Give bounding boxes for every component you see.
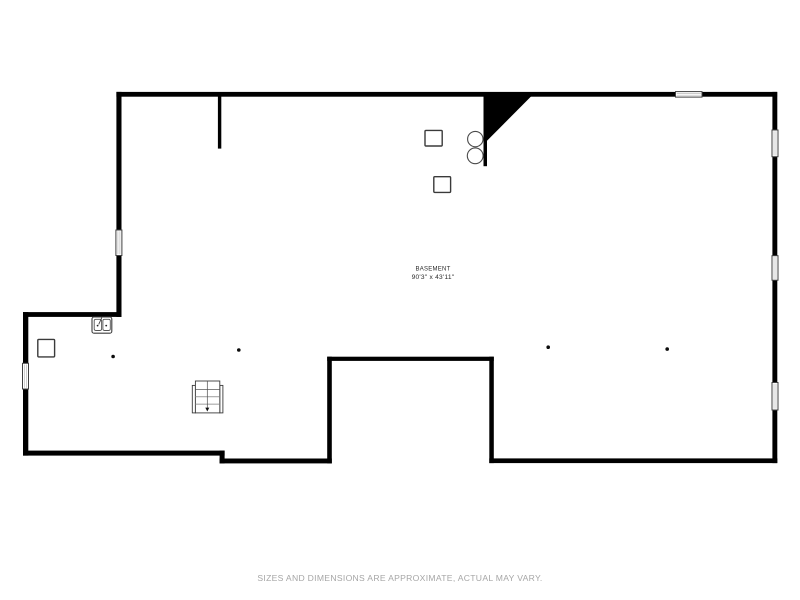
svg-text:BASEMENT: BASEMENT <box>415 267 450 273</box>
svg-text:SIZES AND DIMENSIONS ARE APPRO: SIZES AND DIMENSIONS ARE APPROXIMATE, AC… <box>257 573 542 583</box>
svg-text:90'3" x 43'11": 90'3" x 43'11" <box>412 274 455 281</box>
